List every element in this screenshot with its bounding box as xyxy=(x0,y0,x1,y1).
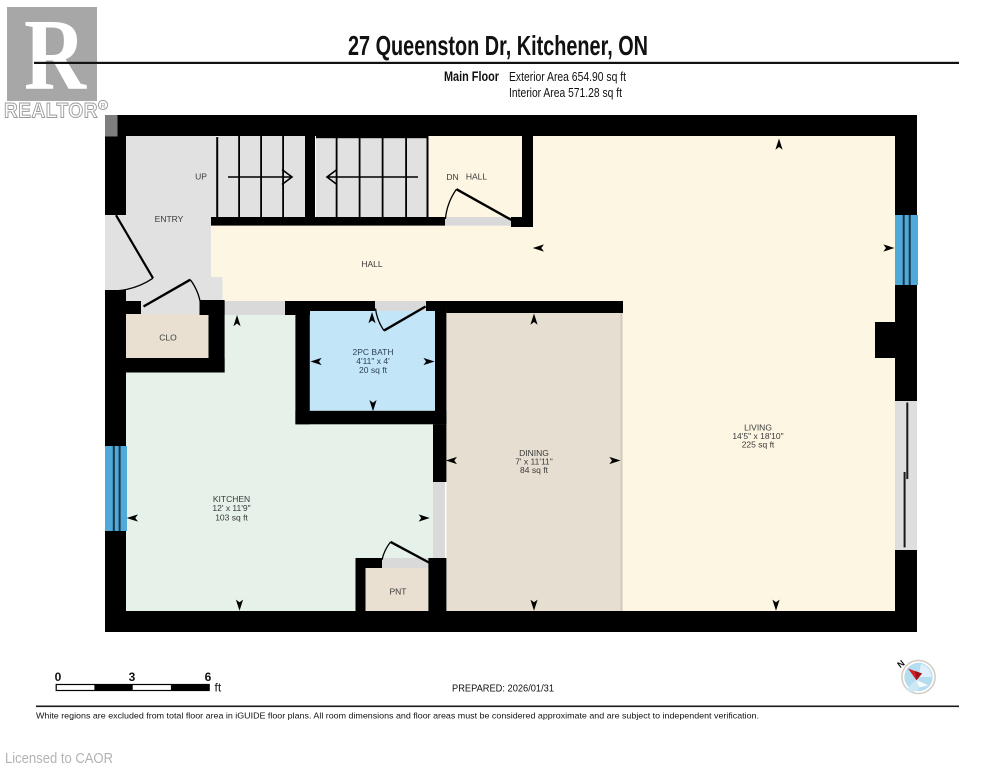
svg-text:White regions are excluded fro: White regions are excluded from total fl… xyxy=(36,711,759,721)
svg-text:CLO: CLO xyxy=(159,333,177,343)
svg-text:225 sq ft: 225 sq ft xyxy=(742,440,775,450)
svg-text:HALL: HALL xyxy=(466,172,488,182)
svg-text:0: 0 xyxy=(55,670,62,684)
svg-text:84 sq ft: 84 sq ft xyxy=(520,465,549,475)
svg-text:R: R xyxy=(24,0,87,112)
svg-text:6: 6 xyxy=(205,670,212,684)
svg-text:UP: UP xyxy=(195,172,207,182)
svg-text:27 Queenston Dr, Kitchener, ON: 27 Queenston Dr, Kitchener, ON xyxy=(348,30,648,61)
svg-text:HALL: HALL xyxy=(361,259,383,269)
svg-text:DN: DN xyxy=(446,172,458,182)
svg-text:ft: ft xyxy=(215,681,222,695)
svg-text:R: R xyxy=(100,103,105,110)
svg-text:ENTRY: ENTRY xyxy=(155,214,184,224)
svg-text:PNT: PNT xyxy=(390,587,407,597)
svg-text:103 sq ft: 103 sq ft xyxy=(215,513,248,523)
svg-text:Exterior Area 654.90 sq ft: Exterior Area 654.90 sq ft xyxy=(509,69,626,84)
svg-text:PREPARED: 2026/01/31: PREPARED: 2026/01/31 xyxy=(452,683,554,695)
svg-text:Interior Area 571.28 sq ft: Interior Area 571.28 sq ft xyxy=(509,85,622,100)
svg-text:12' x 11'9": 12' x 11'9" xyxy=(212,503,250,513)
svg-text:20 sq ft: 20 sq ft xyxy=(359,365,388,375)
svg-text:Main Floor: Main Floor xyxy=(444,69,500,84)
svg-text:REALTOR: REALTOR xyxy=(4,100,98,123)
svg-text:3: 3 xyxy=(129,670,136,684)
svg-text:Licensed to CAOR: Licensed to CAOR xyxy=(5,750,113,767)
